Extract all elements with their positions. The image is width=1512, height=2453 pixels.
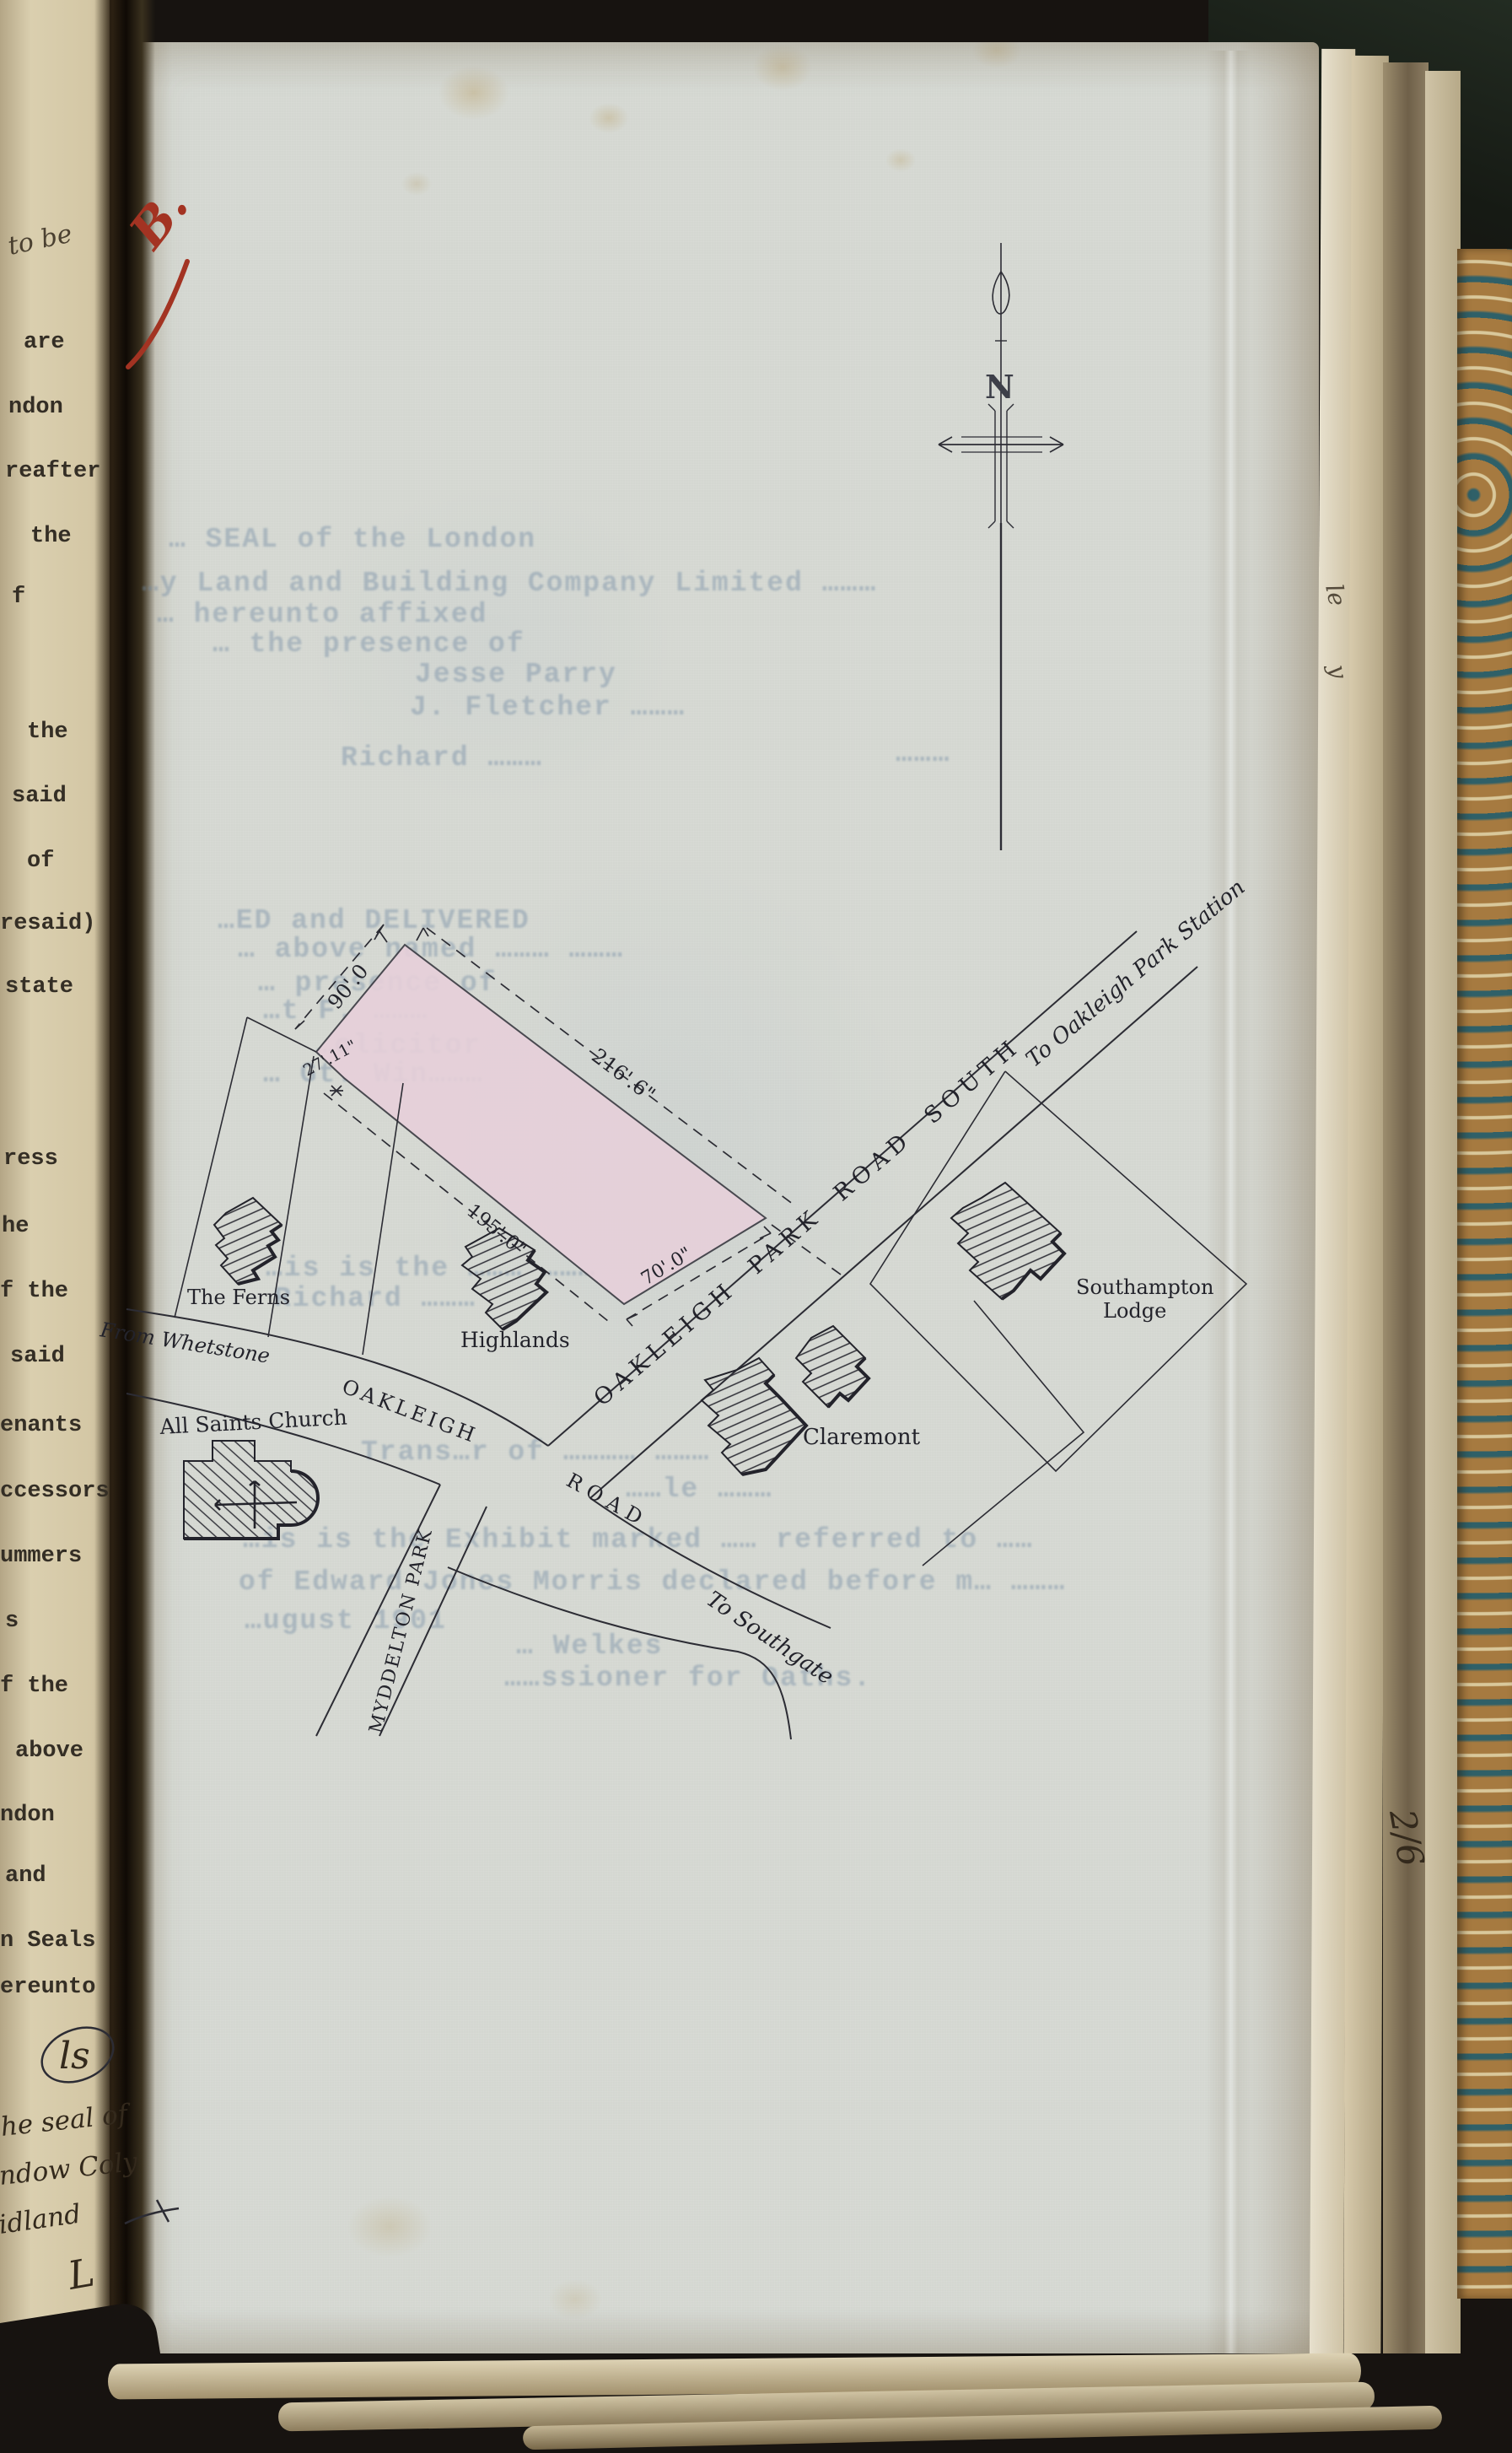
edge-marks: 2/6 le y: [1320, 582, 1432, 1870]
margin-fragment: f: [12, 585, 25, 610]
faint-line: …y Land and Building Company Limited ………: [142, 568, 877, 599]
red-archive-mark: B.: [117, 177, 199, 367]
label-southampton-1: Southampton: [1076, 1275, 1213, 1299]
margin-fragment: f the: [0, 1279, 68, 1304]
compass-north-label: N: [985, 368, 1014, 406]
red-swash: [128, 261, 187, 367]
margin-fragment: state: [5, 974, 73, 1000]
claremont-building-main: [702, 1358, 806, 1474]
edge-note: 2/6: [1381, 1805, 1432, 1869]
faint-line: Richard ………: [274, 1283, 476, 1314]
left-page-text: to be are ndon reafter the f the said of…: [0, 219, 179, 2299]
margin-fragment: f the: [0, 1674, 68, 1699]
book-photo: … SEAL of the London …y Land and Buildin…: [0, 0, 1512, 2453]
faint-line: J. Fletcher ………: [410, 692, 686, 723]
margin-fragment: n Seals: [0, 1928, 95, 1954]
margin-fragment: ndon: [0, 1803, 55, 1828]
faint-line: Jesse Parry: [415, 659, 617, 690]
margin-fragment: enants: [0, 1413, 82, 1438]
margin-fragment: ereunto: [0, 1975, 95, 2000]
label-southampton-2: Lodge: [1103, 1299, 1166, 1323]
handwritten-line: ndow Coly: [0, 2147, 139, 2192]
label-from-whetstone: From Whetstone: [98, 1318, 272, 1368]
margin-fragment: s: [5, 1609, 19, 1634]
margin-fragment: are: [24, 330, 65, 355]
southampton-lodge-building: [951, 1183, 1064, 1299]
plan-drawing: … SEAL of the London …y Land and Buildin…: [0, 0, 1512, 2453]
margin-fragment: reafter: [5, 459, 100, 484]
margin-fragment: ummers: [0, 1544, 82, 1569]
margin-fragment: resaid): [0, 911, 95, 936]
north-compass: N: [939, 243, 1063, 850]
faint-line: …ED and DELIVERED: [218, 905, 530, 936]
handwritten-line: idland: [0, 2199, 83, 2240]
faint-line: … the presence of: [213, 628, 525, 660]
faint-line: …is is the ……… ………: [266, 1253, 596, 1284]
faint-line: ……le ………: [626, 1474, 772, 1505]
conveyed-plot: [316, 945, 766, 1304]
margin-fragment: said: [10, 1344, 65, 1369]
label-highlands: Highlands: [460, 1328, 570, 1352]
margin-fragment: the: [30, 524, 72, 549]
faint-line: ………: [896, 738, 950, 769]
edge-scribble: le: [1320, 582, 1352, 609]
handwritten-initial: L: [64, 2249, 98, 2299]
pencil-note: to be: [5, 219, 74, 261]
label-the-ferns: The Ferns: [187, 1286, 290, 1309]
margin-fragment: of: [27, 849, 54, 874]
faint-line: … Welkes: [516, 1631, 663, 1662]
red-letter: B.: [117, 177, 199, 260]
margin-fragment: said: [12, 784, 67, 809]
handwritten-line: he seal of: [0, 2099, 133, 2143]
margin-fragment: ccessors: [0, 1479, 110, 1504]
label-claremont: Claremont: [803, 1425, 921, 1450]
label-church: All Saints Church: [159, 1404, 348, 1439]
faint-line: of Edward Jones Morris declared before m…: [239, 1566, 1066, 1598]
faint-line: … hereunto affixed: [157, 599, 487, 630]
ink-flourish: [125, 2200, 179, 2224]
label-to-station: To Oakleigh Park Station: [1021, 875, 1250, 1072]
edge-scribble: y: [1323, 661, 1353, 682]
faint-line: Richard ………: [341, 742, 543, 774]
margin-fragment: the: [27, 720, 68, 745]
margin-fragment: above: [15, 1739, 83, 1764]
faint-line: … above named ……… ………: [238, 934, 624, 965]
faint-line: … SEAL of the London: [169, 524, 536, 555]
margin-fragment: and: [5, 1863, 46, 1889]
margin-fragment: he: [2, 1214, 29, 1239]
monogram: ls: [59, 2035, 90, 2078]
faint-line: Trans…r of ………… ………: [361, 1437, 710, 1468]
margin-fragment: ndon: [8, 395, 63, 420]
margin-fragment: ress: [3, 1146, 58, 1172]
